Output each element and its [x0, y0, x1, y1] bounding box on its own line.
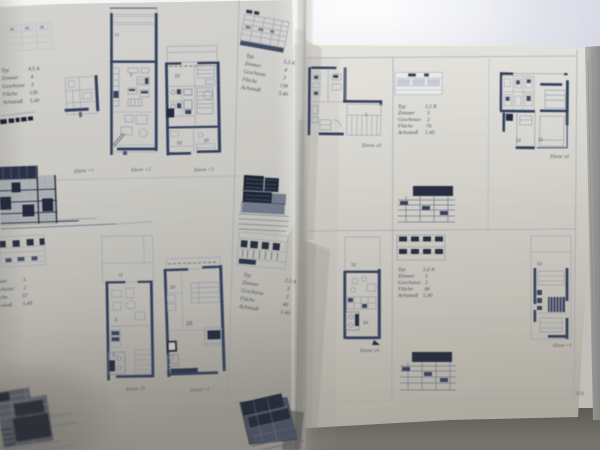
svg-text:4,5 A: 4,5 A — [28, 66, 40, 73]
svg-text:10: 10 — [175, 73, 181, 78]
svg-text:Typ: Typ — [246, 53, 255, 60]
svg-text:12: 12 — [115, 32, 120, 37]
svg-text:Typ: Typ — [1, 68, 9, 74]
